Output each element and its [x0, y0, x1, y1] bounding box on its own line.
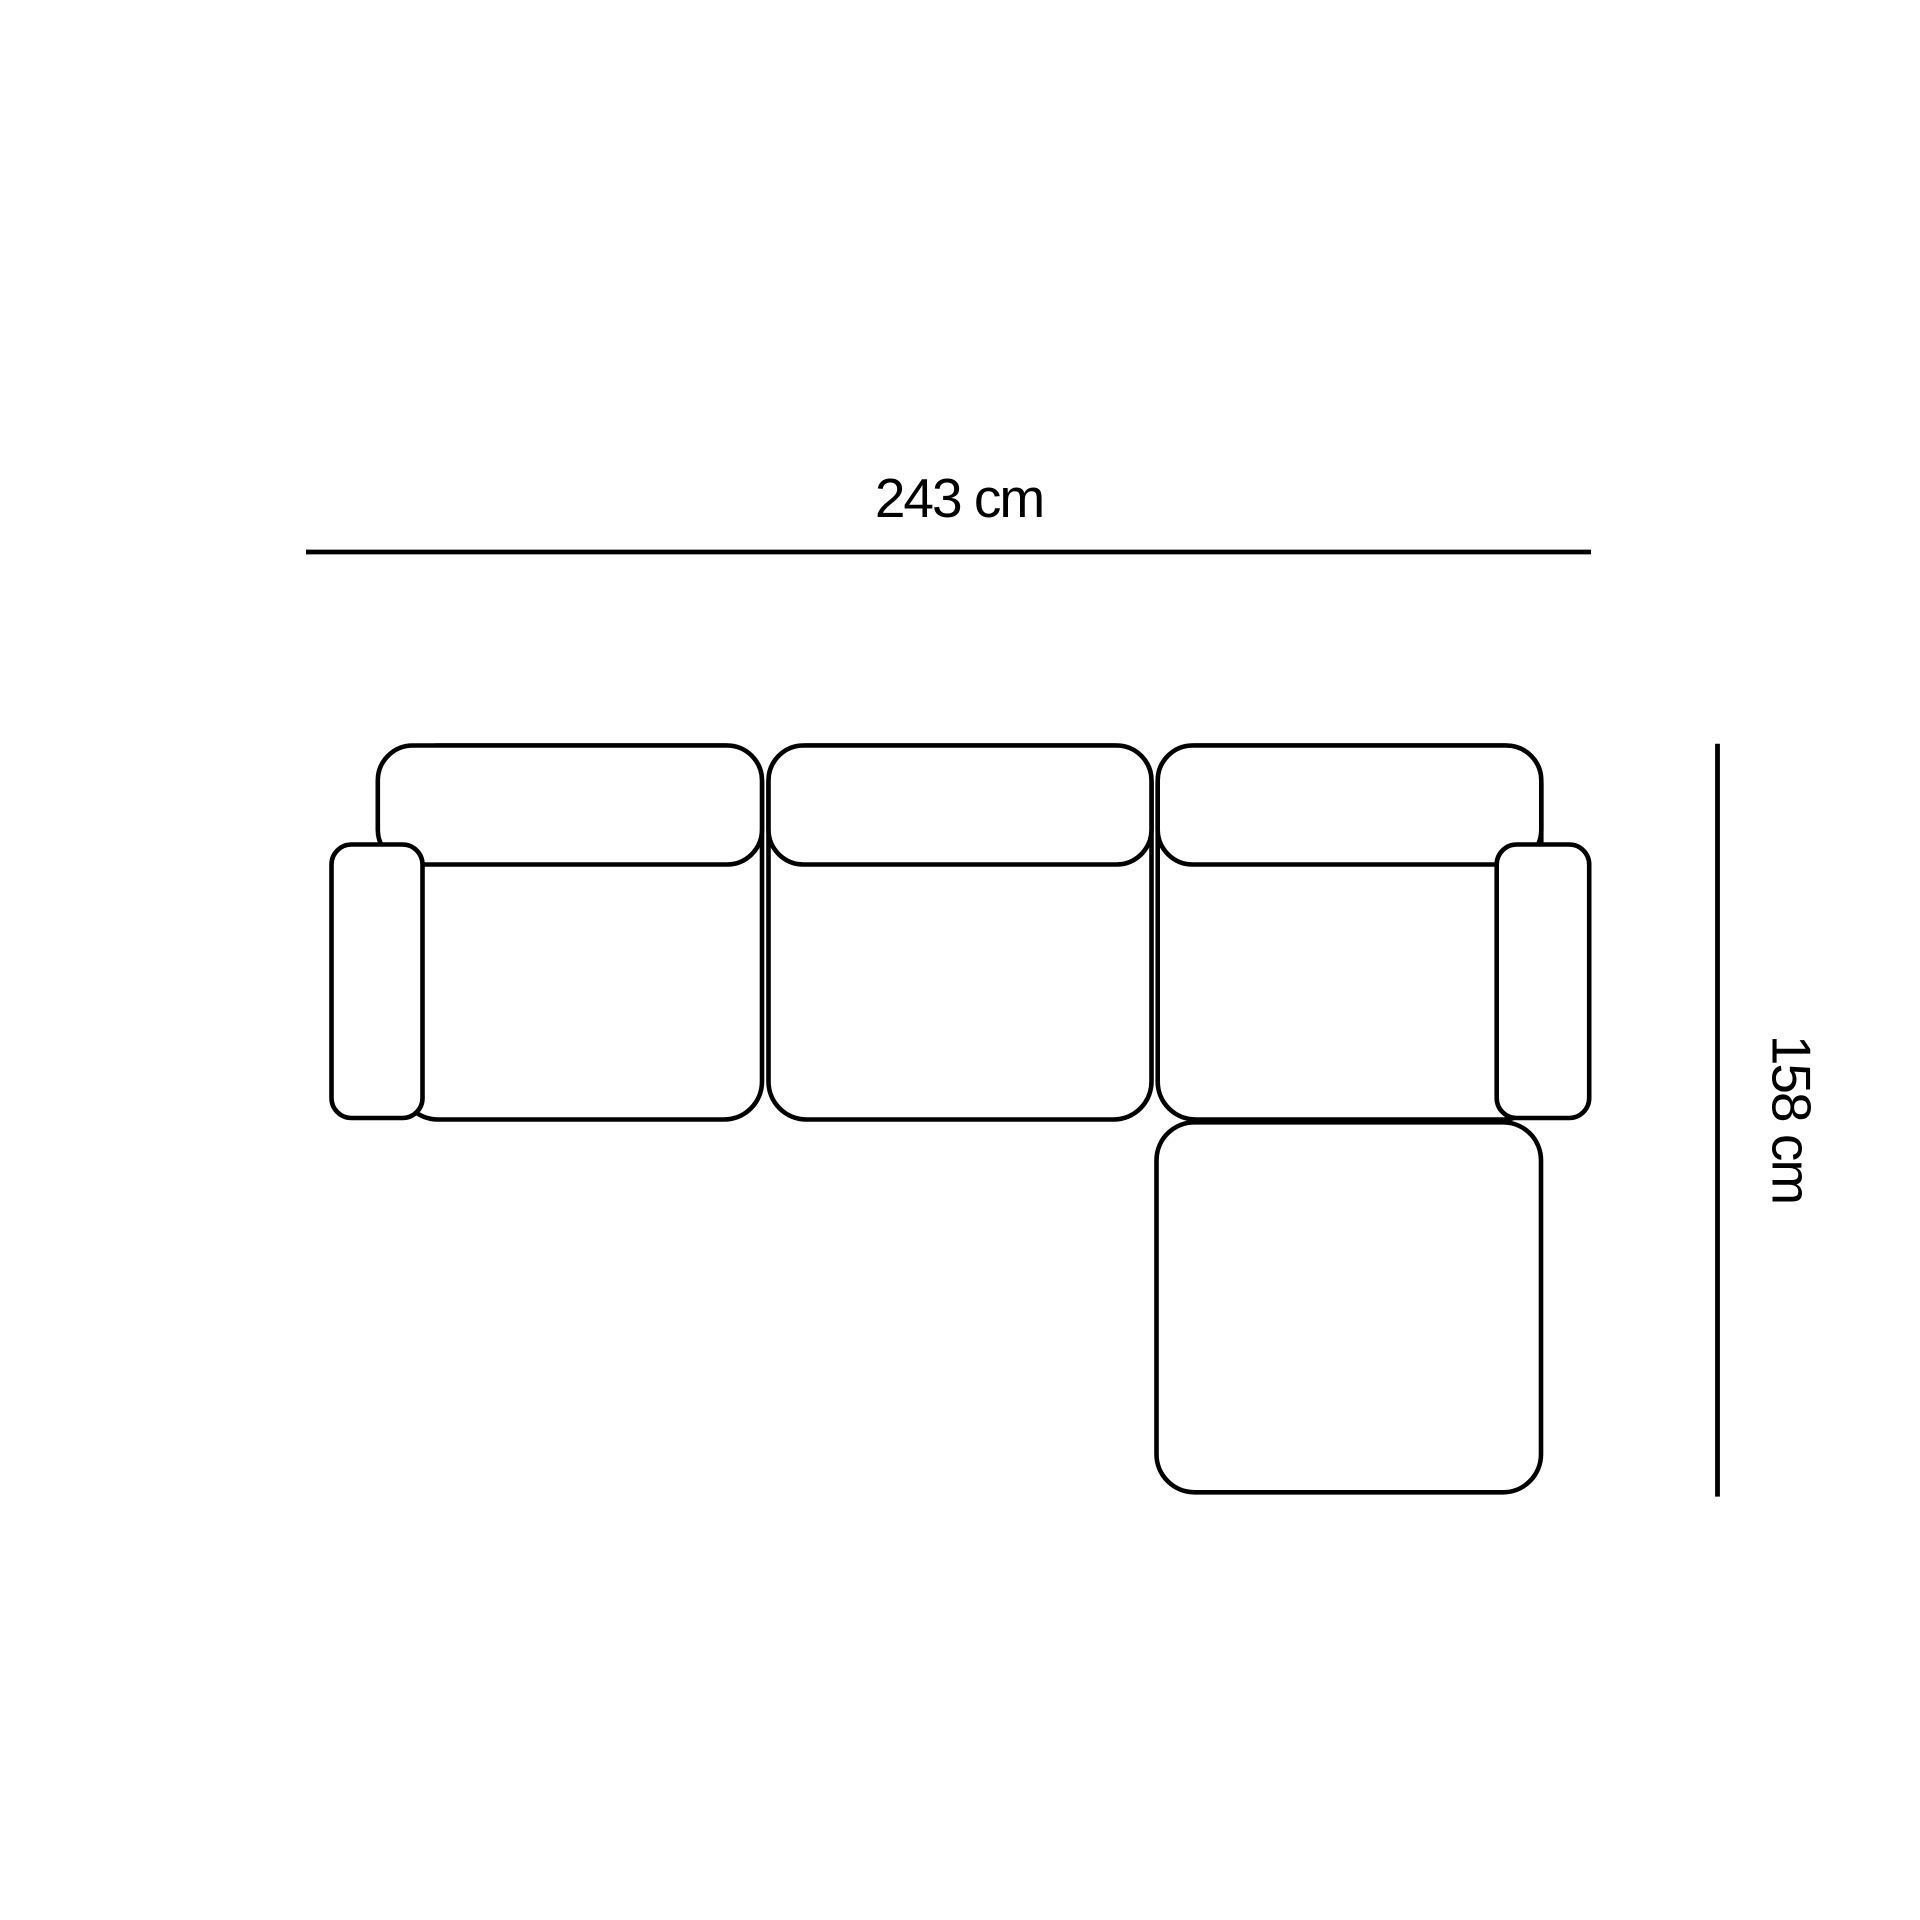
svg-text:243 cm: 243 cm: [875, 467, 1043, 529]
svg-text:158 cm: 158 cm: [1761, 1035, 1823, 1203]
